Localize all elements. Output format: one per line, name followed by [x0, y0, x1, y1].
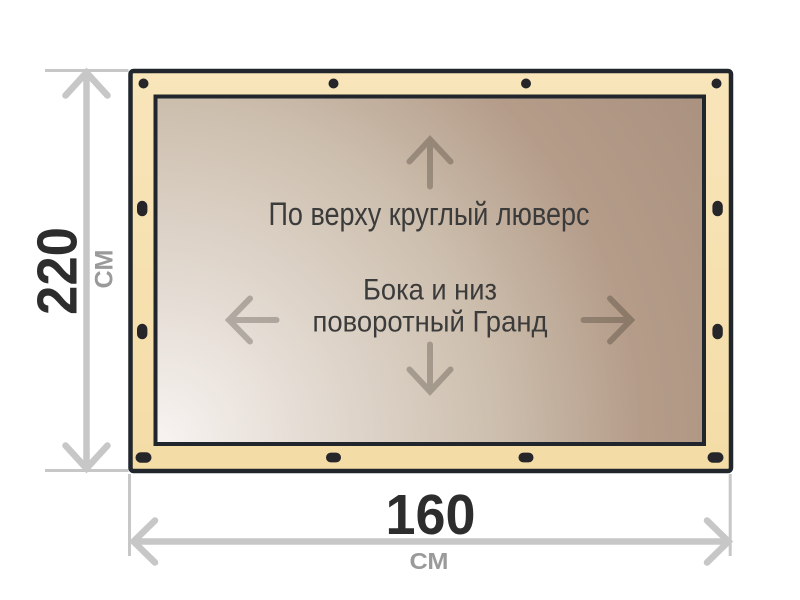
svg-text:160: 160	[386, 483, 476, 547]
svg-text:СМ: СМ	[91, 250, 119, 289]
svg-text:поворотный Гранд: поворотный Гранд	[313, 306, 548, 339]
svg-text:По верху круглый люверс: По верху круглый люверс	[269, 196, 590, 232]
svg-text:220: 220	[26, 227, 90, 315]
svg-text:Бока и низ: Бока и низ	[363, 274, 497, 307]
svg-text:СМ: СМ	[410, 548, 449, 574]
